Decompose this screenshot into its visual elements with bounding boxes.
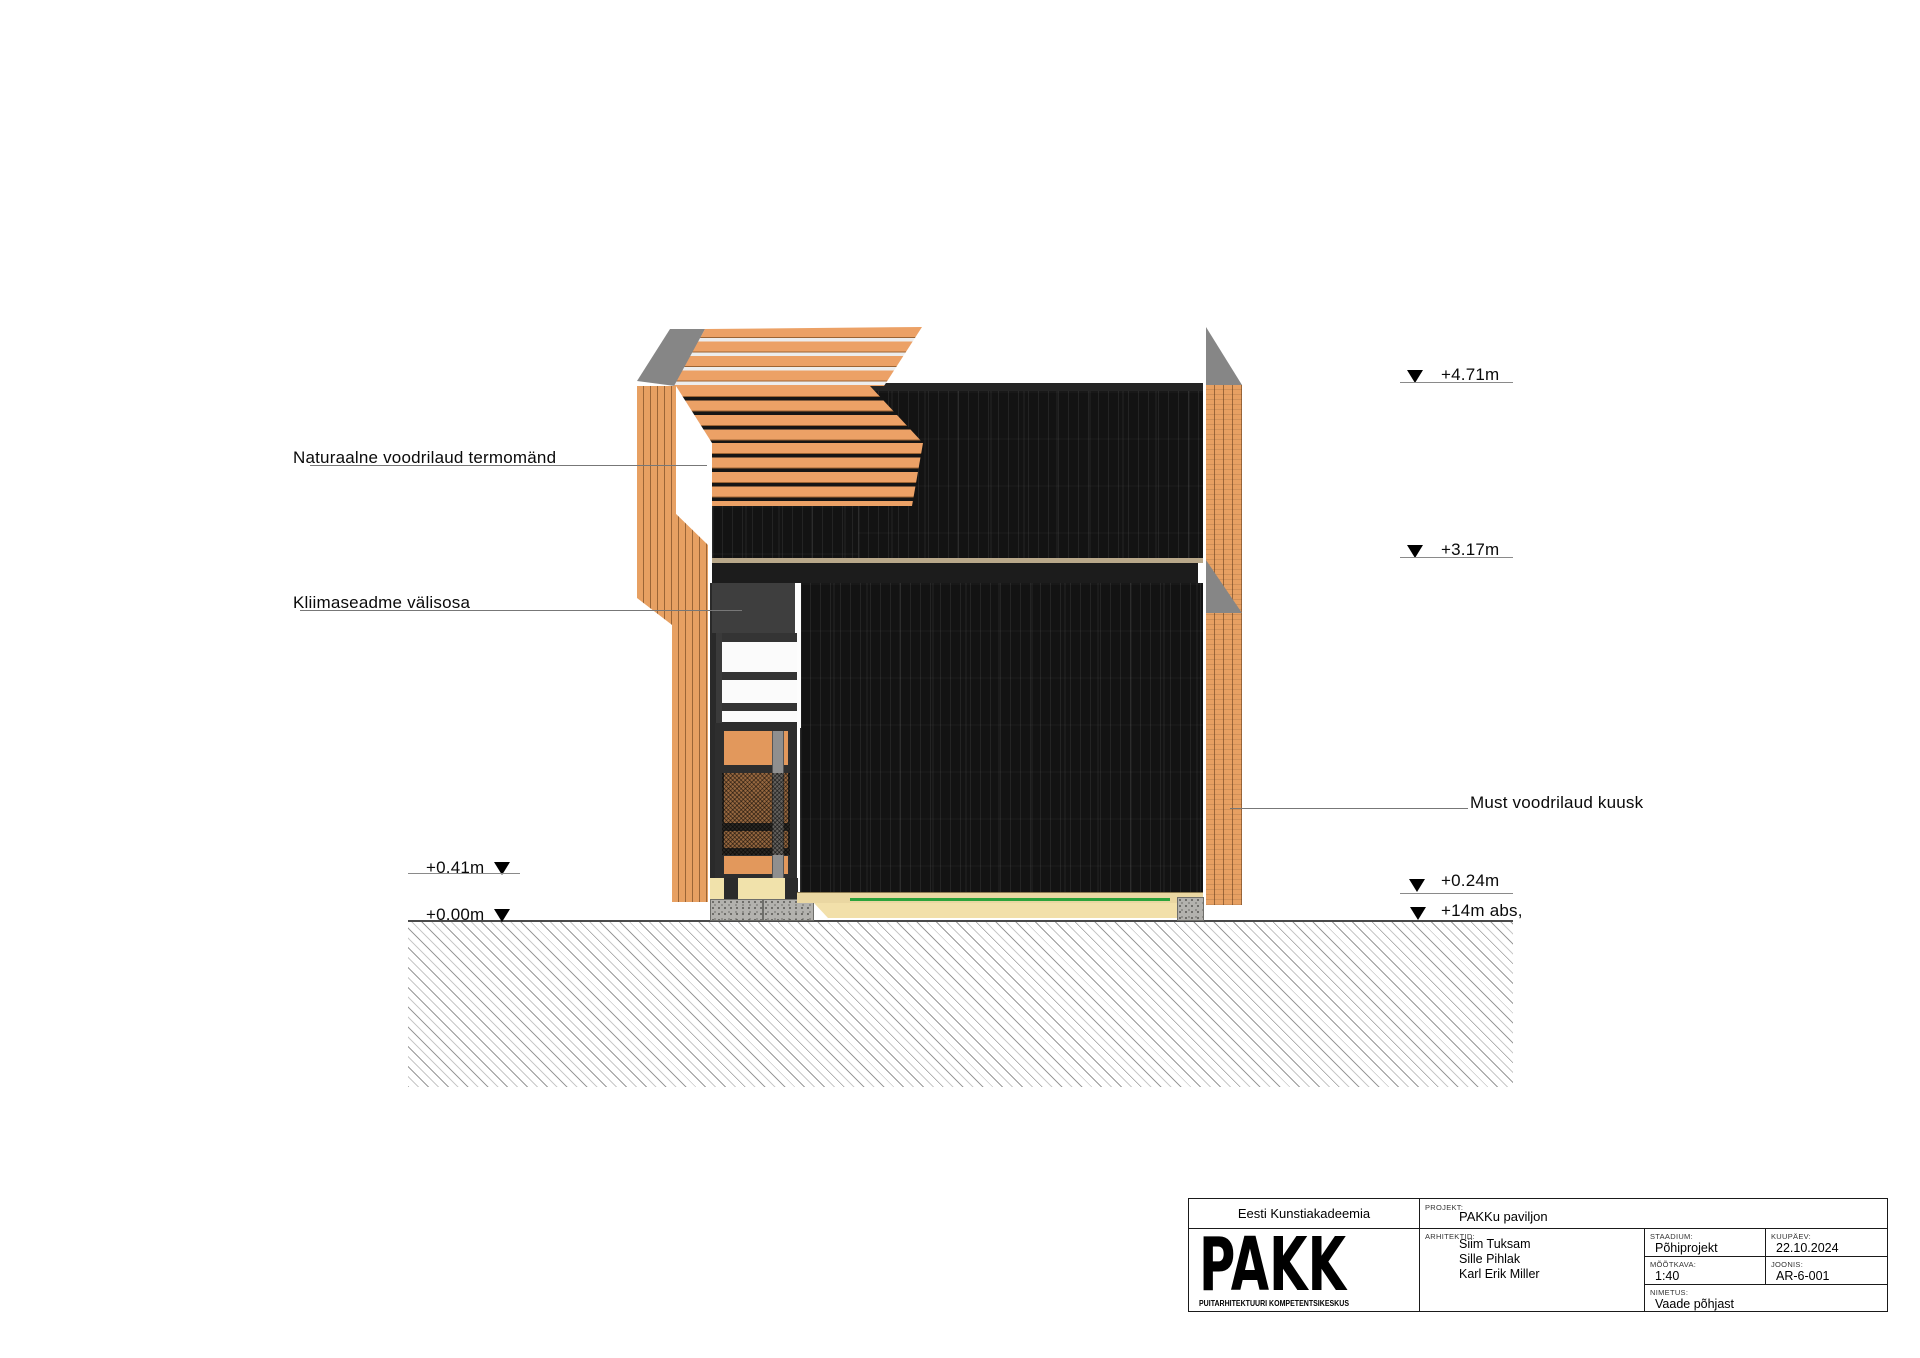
roof-fascia <box>857 383 1203 391</box>
elevation-triangle <box>1410 907 1426 920</box>
architect-name: Siim Tuksam <box>1459 1237 1531 1251</box>
louver-bar <box>716 703 797 711</box>
architect-name: Karl Erik Miller <box>1459 1267 1540 1281</box>
elevation-label-14abs: +14m abs, <box>1441 901 1523 921</box>
gravel-pad-right <box>1177 897 1204 921</box>
leader-cladding-spruce <box>1230 808 1468 809</box>
project-label: PROJEKT: <box>1425 1203 1463 1212</box>
left-wall-outer <box>637 386 676 628</box>
pergola-slats-top <box>674 327 922 386</box>
date-value: 22.10.2024 <box>1776 1241 1839 1255</box>
titleblock-divider <box>1644 1228 1645 1311</box>
stage-value: Põhiprojekt <box>1655 1241 1718 1255</box>
elevation-triangle <box>1409 879 1425 892</box>
pergola-slats-low <box>712 443 923 506</box>
elevation-label-000: +0.00m <box>426 905 484 925</box>
louver-jamb <box>716 633 722 730</box>
elevation-line-471 <box>1400 382 1513 383</box>
ac-unit-panel <box>712 583 797 633</box>
black-cladding-lower <box>800 583 1203 893</box>
plinth-green-line <box>850 898 1170 901</box>
name-value: Vaade põhjast <box>1655 1297 1734 1311</box>
elevation-line-041 <box>408 873 520 874</box>
plinth-band <box>797 892 1203 903</box>
titleblock-divider <box>1419 1199 1420 1311</box>
project-value: PAKKu paviljon <box>1459 1209 1548 1224</box>
elevation-line-317 <box>1400 557 1513 558</box>
door-mesh <box>722 773 790 855</box>
louver-bar <box>716 672 797 680</box>
louver-box <box>716 633 797 730</box>
pakk-logo: PAKK PUITARHITEKTUURI KOMPETENTSIKESKUS <box>1189 1228 1419 1311</box>
service-door <box>715 723 797 882</box>
black-cladding-upper-left <box>712 506 858 562</box>
ground-hatch <box>408 922 1513 1087</box>
leader-hvac <box>300 610 742 611</box>
leader-cladding-pine <box>310 465 707 466</box>
title-block: Eesti Kunstiakadeemia PAKK PUITARHITEKTU… <box>1188 1198 1888 1312</box>
louver-bar <box>716 633 797 642</box>
elevation-label-041: +0.41m <box>426 858 484 878</box>
scale-label: MÕÕTKAVA: <box>1650 1260 1696 1269</box>
elevation-triangle <box>494 909 510 922</box>
architect-name: Sille Pihlak <box>1459 1252 1520 1266</box>
gravel-pad-left <box>710 899 763 921</box>
elevation-drawing-sheet: Naturaalne voodrilaud termomänd Kliimase… <box>0 0 1920 1358</box>
name-label: NIMETUS: <box>1650 1288 1688 1297</box>
sheet-label: JOONIS: <box>1771 1260 1803 1269</box>
elevation-line-024 <box>1400 893 1513 894</box>
titleblock-divider <box>1644 1284 1887 1285</box>
organization-cell: Eesti Kunstiakadeemia <box>1189 1199 1419 1228</box>
right-column <box>1206 385 1242 905</box>
steel-beam <box>712 563 1198 583</box>
label-cladding-spruce: Must voodrilaud kuusk <box>1470 793 1643 813</box>
date-label: KUUPÄEV: <box>1771 1232 1811 1241</box>
titleblock-divider <box>1644 1256 1887 1257</box>
pakk-logo-caption: PUITARHITEKTUURI KOMPETENTSIKESKUS <box>1199 1299 1350 1308</box>
left-wall-inner <box>672 490 708 902</box>
roof-edge-right-top <box>1206 327 1242 385</box>
pakk-logo-text: PAKK <box>1199 1228 1348 1308</box>
sheet-value: AR-6-001 <box>1776 1269 1830 1283</box>
door-rail <box>715 765 797 773</box>
organization-name: Eesti Kunstiakadeemia <box>1238 1206 1370 1221</box>
stage-label: STAADIUM: <box>1650 1232 1693 1241</box>
elevation-label-024: +0.24m <box>1441 871 1499 891</box>
logo-cell: PAKK PUITARHITEKTUURI KOMPETENTSIKESKUS <box>1189 1228 1419 1311</box>
deck-wedge <box>814 903 1177 918</box>
scale-value: 1:40 <box>1655 1269 1679 1283</box>
